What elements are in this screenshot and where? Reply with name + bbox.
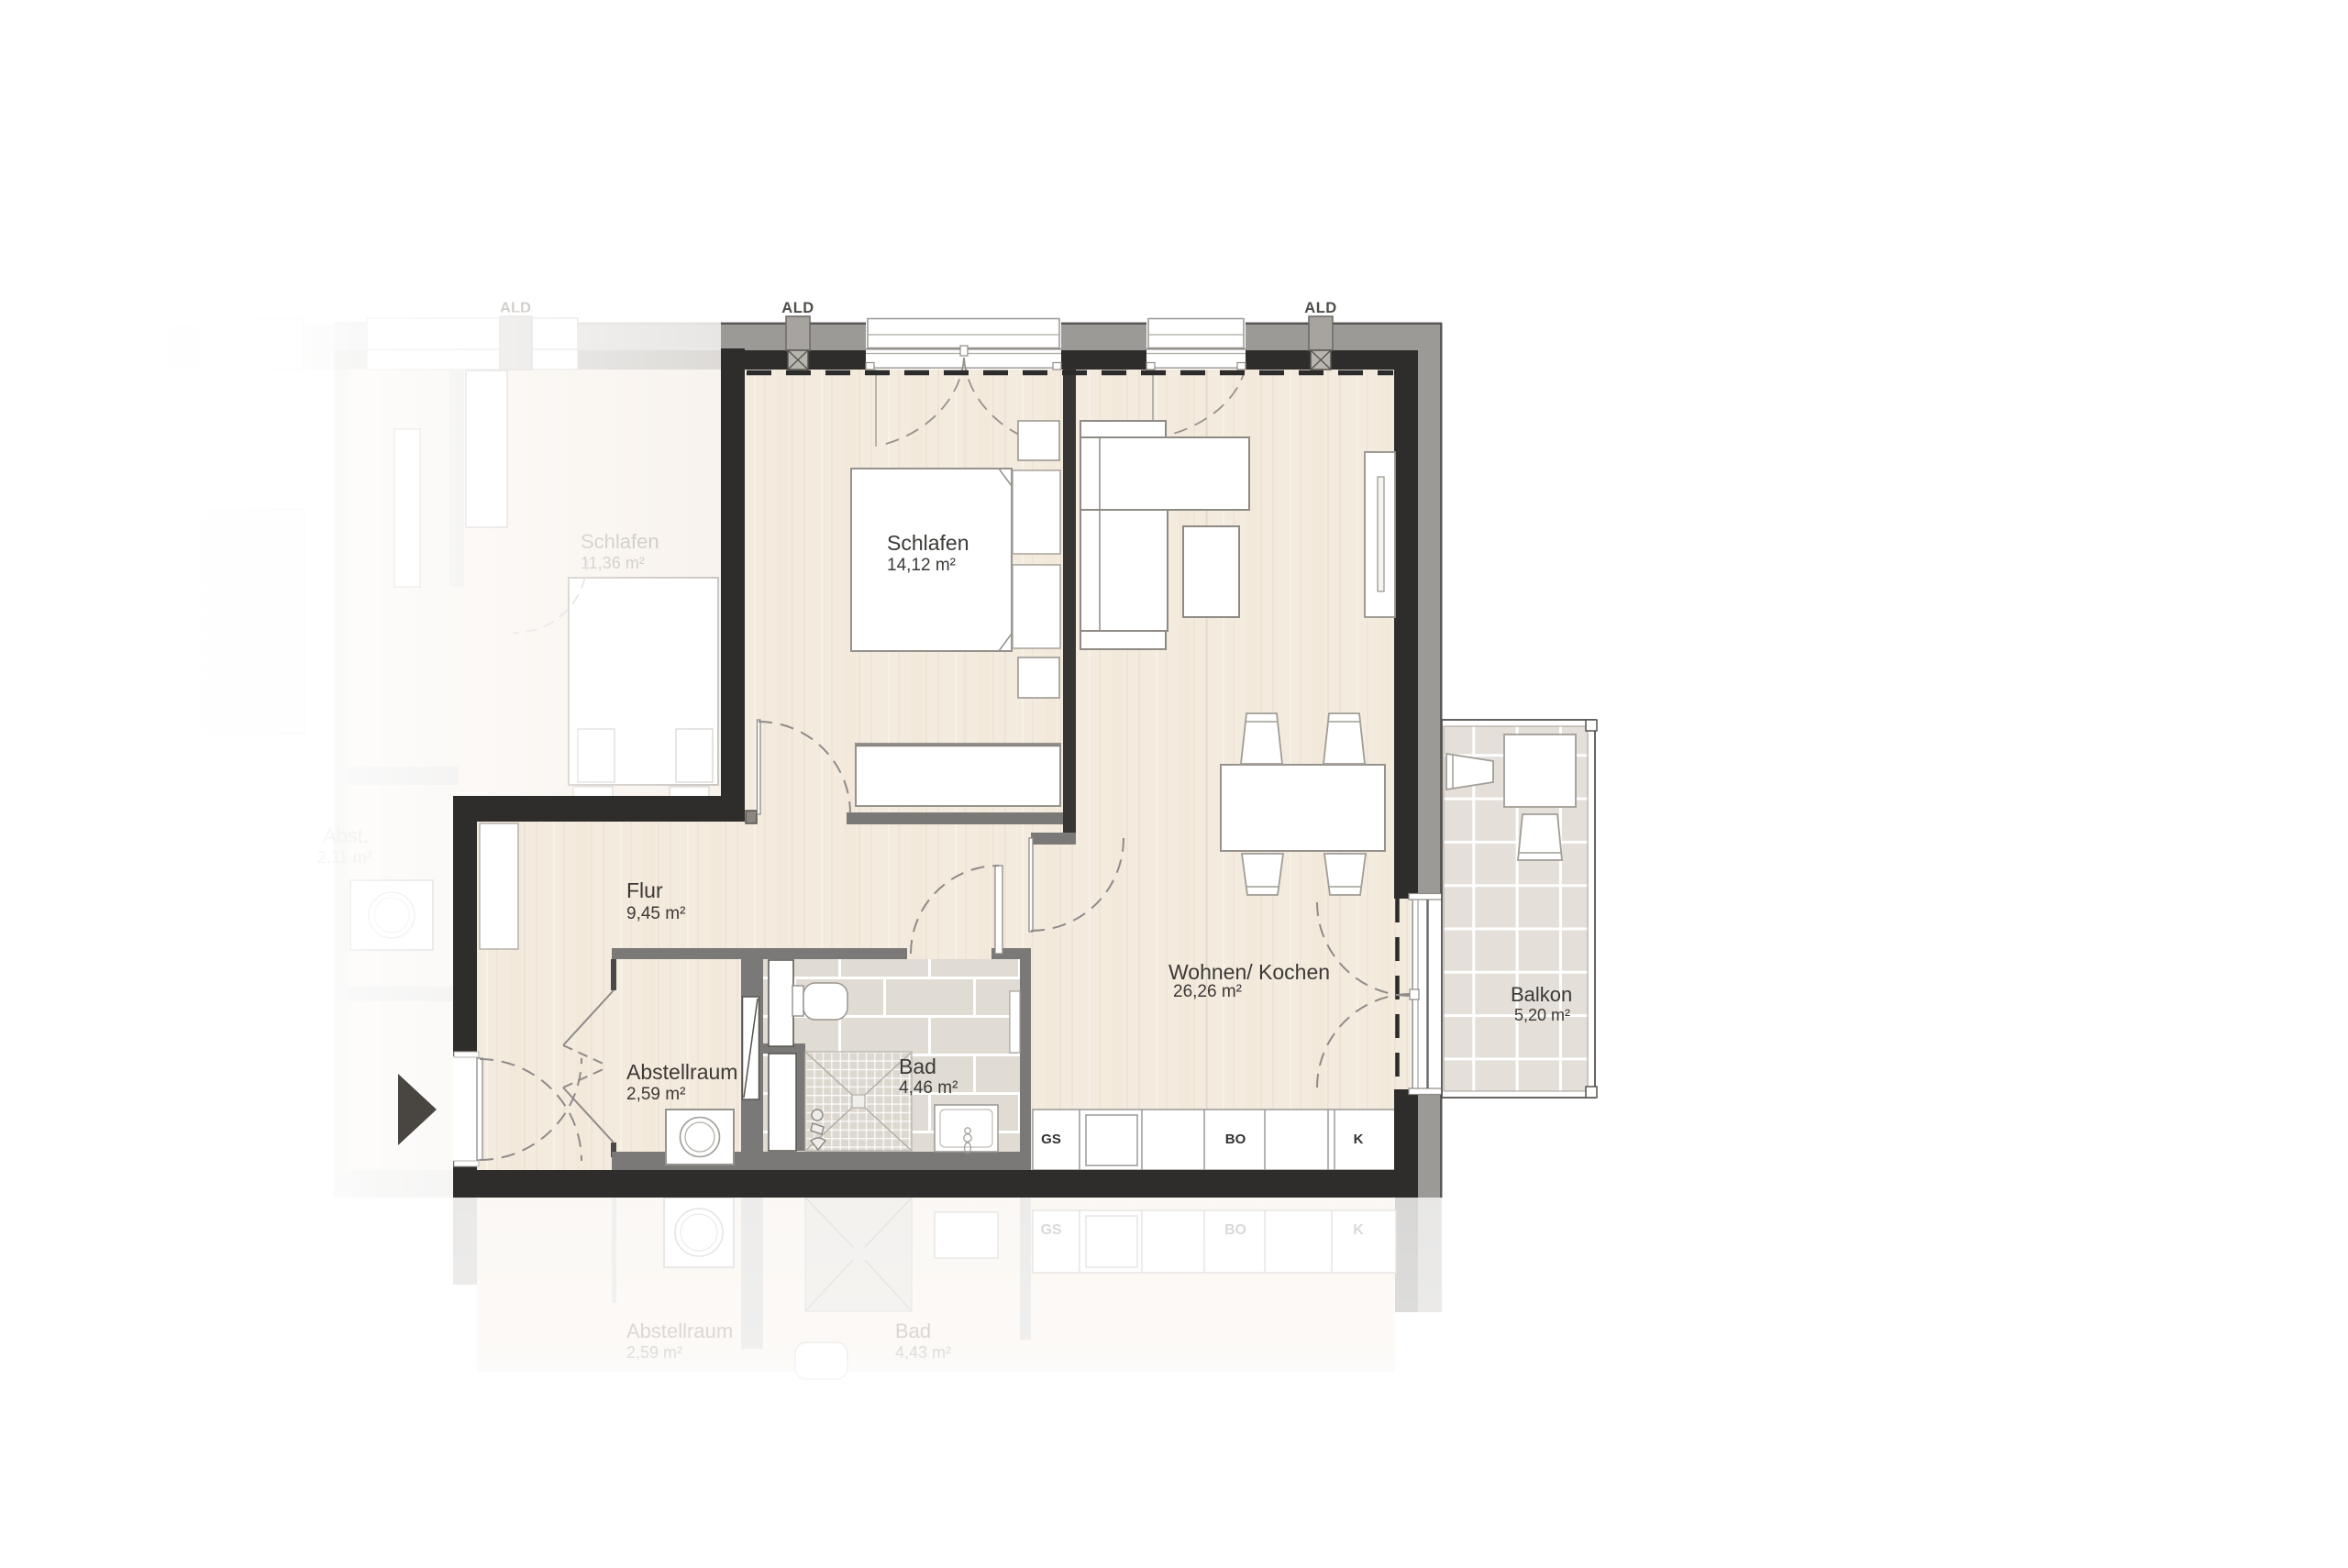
svg-text:BO: BO <box>1225 1132 1246 1147</box>
svg-text:Abstellraum: Abstellraum <box>626 1060 737 1084</box>
svg-text:Balkon: Balkon <box>1511 983 1572 1006</box>
svg-text:26,26 m²: 26,26 m² <box>1173 982 1242 1001</box>
svg-text:Wohnen/ Kochen: Wohnen/ Kochen <box>1168 960 1330 984</box>
svg-text:Bad: Bad <box>899 1055 936 1078</box>
svg-text:9,45 m²: 9,45 m² <box>626 904 685 923</box>
svg-text:ALD: ALD <box>781 300 814 316</box>
svg-text:4,46 m²: 4,46 m² <box>899 1078 958 1098</box>
svg-text:14,12 m²: 14,12 m² <box>887 556 956 575</box>
svg-text:2,59 m²: 2,59 m² <box>626 1085 685 1104</box>
svg-text:K: K <box>1354 1132 1364 1147</box>
svg-text:Flur: Flur <box>626 878 663 902</box>
svg-text:GS: GS <box>1041 1132 1061 1147</box>
svg-text:ALD: ALD <box>1304 300 1336 316</box>
svg-text:5,20 m²: 5,20 m² <box>1514 1006 1570 1024</box>
svg-text:Schlafen: Schlafen <box>887 531 969 555</box>
